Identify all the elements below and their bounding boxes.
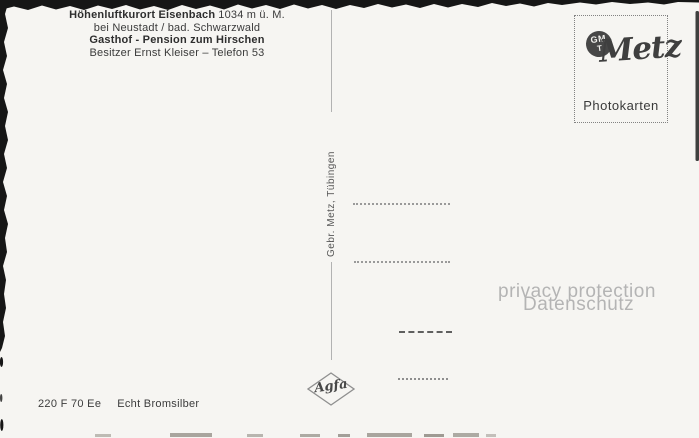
altitude-text: 1034 m ü. M. xyxy=(218,9,285,21)
film-edge-left xyxy=(0,0,12,438)
stamp-caption: Photokarten xyxy=(575,98,667,113)
address-line-4 xyxy=(398,378,448,380)
order-code: 220 F 70 Ee xyxy=(38,398,101,410)
paper-type: Echt Bromsilber xyxy=(117,398,199,410)
stamp-box: GM T Metz Photokarten xyxy=(574,15,668,123)
imprint-line-3: Gasthof - Pension zum Hirschen xyxy=(58,34,296,47)
film-edge-right xyxy=(693,0,699,438)
watermark-line-2: Datenschutz xyxy=(523,295,634,314)
imprint-line-1: Höhenluftkurort Eisenbach1034 m ü. M. xyxy=(58,9,296,22)
imprint-line-4: Besitzer Ernst Kleiser – Telefon 53 xyxy=(58,47,296,60)
imprint-header: Höhenluftkurort Eisenbach1034 m ü. M. be… xyxy=(58,9,296,59)
address-line-2 xyxy=(354,261,450,263)
address-line-3 xyxy=(399,331,452,333)
center-divider-bottom xyxy=(331,262,332,360)
metz-brand-script: Metz xyxy=(598,31,682,68)
publisher-vertical-text: Gebr. Metz, Tübingen xyxy=(326,125,340,257)
postcard-back: Höhenluftkurort Eisenbach1034 m ü. M. be… xyxy=(0,0,699,438)
footer-imprint: 220 F 70 EeEcht Bromsilber xyxy=(38,398,199,410)
address-line-1 xyxy=(353,203,450,205)
agfa-logo: Agfa xyxy=(307,372,355,406)
imprint-line-2: bei Neustadt / bad. Schwarzwald xyxy=(58,22,296,35)
center-divider-top xyxy=(331,10,332,112)
location-title: Höhenluftkurort Eisenbach xyxy=(69,9,215,21)
scan-artifact-dashes xyxy=(0,430,699,438)
